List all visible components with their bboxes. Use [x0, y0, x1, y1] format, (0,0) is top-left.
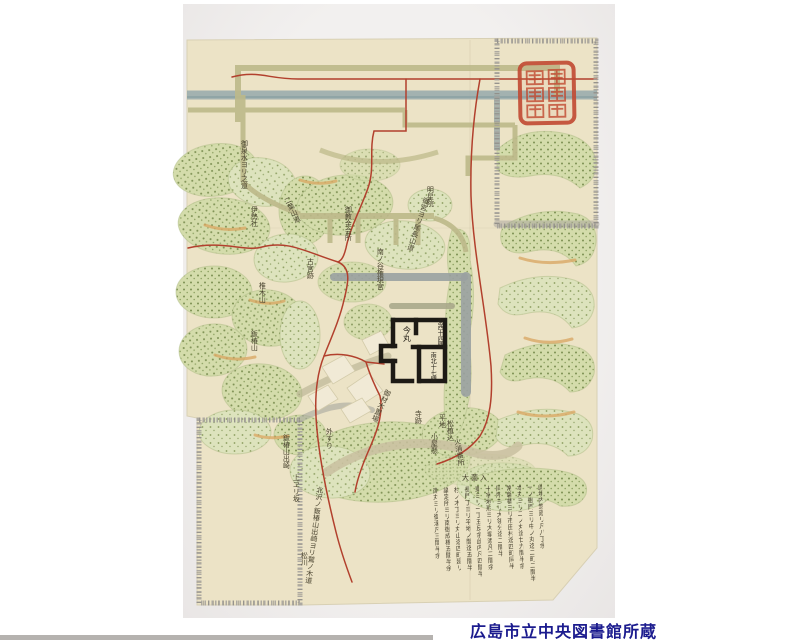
castle-label: 今丸 — [402, 326, 410, 342]
note-column: 同所ヨリ大領分迄二間半 — [493, 485, 504, 603]
map-label: 平地 — [438, 414, 445, 428]
screenshot-stage: 御泉水ヨリ之道 伊勢社 椎木山 鈑椿山 鈑椿山出崎 上ヱリ坂 北沢ノ鈑椿山出崎ヨ… — [0, 0, 800, 640]
castle-label: 南北十七間 — [429, 352, 435, 382]
map-label: 南ノ谷権現宮 — [376, 248, 383, 290]
map-label: 御教金会所 — [344, 206, 351, 241]
map-label: 明星院 — [426, 186, 433, 207]
photo-edge-strip — [0, 635, 433, 640]
castle-label: 東西十四間 — [436, 318, 442, 348]
note-column: 杉ノ木丁ヨリ丸山迄四町廻リ — [451, 486, 462, 604]
collection-caption: 広島市立中央図書館所蔵 — [470, 618, 657, 640]
map-label: 伊勢社 — [250, 206, 257, 227]
garden-label: 大薗入 — [462, 473, 489, 483]
note-column: 南丸ヨリ御濠凡三間半余 — [430, 487, 441, 605]
map-label: 寺跡 — [414, 410, 421, 424]
map-label: 鈑椿山出崎 — [282, 434, 289, 469]
note-column: 議定所ヨリ南御成橋五間半余 — [441, 487, 452, 605]
map-label: 鈑椿山 — [250, 330, 257, 351]
note-column: 長門丁ヨリ平地ノ間迄五間半 — [462, 486, 473, 604]
note-column: 一ノ御門ヨリ中ノ丸迄二町二間半 — [525, 484, 536, 602]
map-label: 外すり — [325, 428, 332, 449]
note-column: 常磐橋ヨリ市田村迄四町同半 — [504, 485, 515, 603]
map-label: 古宮跡 — [306, 258, 313, 279]
note-column: 十字地形ヨリ大塀添凡二間余 — [483, 485, 494, 603]
photo-background — [183, 4, 615, 618]
note-column: 本丸ヨリ二ノ丸迄廿九間半余 — [514, 484, 525, 602]
map-label: 御泉水ヨリ之道 — [240, 140, 247, 189]
map-label: 小屋懸 — [430, 433, 437, 454]
survey-notes-block: 此境内惣廻リ凡八丁余 一ノ御門ヨリ中ノ丸迄二町二間半 本丸ヨリ二ノ丸迄廿九間半余… — [400, 484, 546, 607]
map-label: 上ヱリ坂 — [292, 474, 299, 502]
map-label: 椎木山 — [258, 282, 265, 303]
map-label: 松川 — [300, 552, 307, 566]
note-column: 東ヨリ一丁五反余此内凡四間半 — [472, 486, 483, 604]
